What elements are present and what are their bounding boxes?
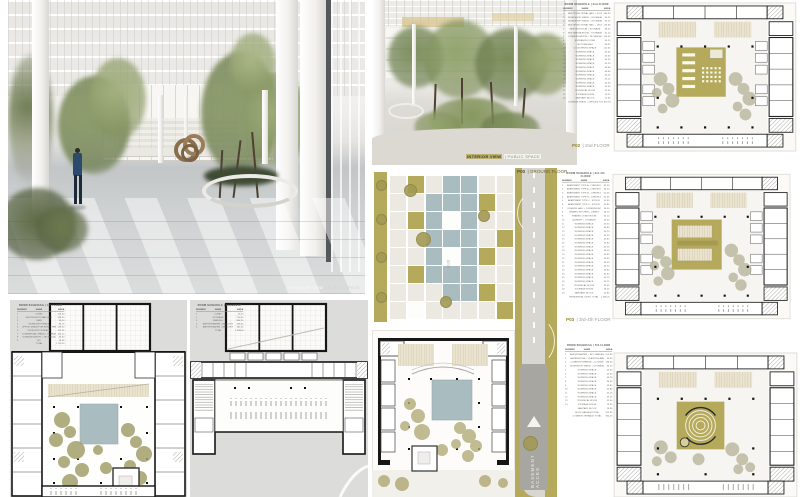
plaza-cell bbox=[479, 176, 495, 193]
floor-code: P03 bbox=[566, 317, 574, 322]
plaza-cell bbox=[461, 284, 477, 301]
plaza-cell bbox=[426, 194, 442, 211]
plaza-cell bbox=[443, 266, 459, 283]
column bbox=[514, 26, 518, 106]
floor-plan-3rd-4th bbox=[612, 170, 791, 323]
plaza-cell bbox=[426, 284, 442, 301]
plaza-cell bbox=[390, 284, 406, 301]
plaza-cell bbox=[461, 302, 477, 319]
schedule-header: NUMBER NAME AREA bbox=[565, 348, 612, 352]
plaza-cell bbox=[426, 302, 442, 319]
floor-name: | GROUND FLOOR bbox=[527, 169, 567, 174]
legend-title: ROOM SCHEDULE | BASEMENT bbox=[196, 304, 243, 307]
plaza-cell bbox=[497, 212, 513, 229]
plaza-cell bbox=[479, 194, 495, 211]
plaza-cell bbox=[426, 212, 442, 229]
schedule-rows: 1AMPHITHEATER + SKY GARDEN210.402GREENHO… bbox=[565, 352, 612, 417]
plaza-cell bbox=[461, 176, 477, 193]
legend-rows: 1LOBBY124.602MULTIFUNCTIONAL HALL286.403… bbox=[17, 312, 64, 345]
tree-marker bbox=[440, 296, 452, 308]
plaza-cell bbox=[497, 176, 513, 193]
header-name: NAME bbox=[22, 308, 56, 311]
tree-canopy bbox=[90, 58, 146, 140]
plaza-cell bbox=[443, 212, 459, 229]
tree-canopy bbox=[230, 33, 276, 95]
plaza-cell bbox=[479, 248, 495, 265]
road-curve-line bbox=[519, 318, 555, 364]
header-area: AREA bbox=[235, 308, 243, 311]
person bbox=[70, 148, 86, 216]
panel-first-floor: ROOM SCHEDULE | 1st FLOOR NUMBER NAME AR… bbox=[10, 300, 187, 497]
tree-marker bbox=[376, 292, 387, 303]
header-name: NAME bbox=[568, 7, 602, 10]
plaza-cell bbox=[390, 194, 406, 211]
plaza-cell bbox=[408, 266, 424, 283]
plaza-cell bbox=[408, 302, 424, 319]
tree-marker bbox=[376, 180, 387, 191]
caption-subtitle: | PUBLIC SPACE bbox=[504, 154, 541, 159]
legend-rows: 1LOBBY45.202STORAGE210.403PARKING864.254… bbox=[196, 312, 243, 332]
plaza-cell bbox=[390, 212, 406, 229]
legend-header: NUMBER NAME AREA bbox=[196, 308, 243, 312]
interior-rendering-main: INTERIOR VIEW | PUBLIC SPACE bbox=[8, 0, 365, 294]
knot-sculpture bbox=[174, 134, 204, 160]
stone-path bbox=[372, 128, 577, 165]
plaza-cell bbox=[461, 212, 477, 229]
plaza-cell bbox=[479, 302, 495, 319]
floor-label-3rd-4th: P03 | 3rd-4th FLOOR bbox=[566, 317, 611, 322]
schedule-header: NUMBER NAME AREA bbox=[563, 7, 610, 11]
level-annotation: +0.00 bbox=[446, 260, 450, 269]
basement-ramp: BASEMENT ACCES bbox=[520, 364, 548, 490]
plaza-cell bbox=[408, 248, 424, 265]
column bbox=[158, 95, 163, 163]
caption-title: INTERIOR VIEW bbox=[289, 285, 323, 290]
plaza-cell bbox=[426, 248, 442, 265]
schedule-title: ROOM SCHEDULE | 3rd-4th FLOOR bbox=[562, 172, 609, 178]
legend-header: NUMBER NAME AREA bbox=[17, 308, 64, 312]
header-area: AREA bbox=[601, 179, 609, 182]
tree-marker bbox=[376, 214, 387, 225]
floor-plan-5th bbox=[613, 352, 798, 497]
floor-name: | 3rd-4th FLOOR bbox=[576, 317, 610, 322]
photo-caption: INTERIOR VIEW | PUBLIC SPACE bbox=[289, 285, 360, 290]
schedule-rows: 1APARTMENT TYPE A - 2 BEDROOM84.202APART… bbox=[562, 183, 609, 299]
plaza-cell bbox=[461, 194, 477, 211]
floor-label-ground: P00 | GROUND FLOOR bbox=[517, 169, 567, 174]
room-schedule-5th-floor: ROOM SCHEDULE | 5th FLOOR NUMBER NAME AR… bbox=[565, 344, 612, 418]
schedule-title: ROOM SCHEDULE | 2nd FLOOR bbox=[563, 3, 610, 6]
header-name: NAME bbox=[570, 348, 604, 351]
plaza-cell bbox=[479, 266, 495, 283]
plaza-cell bbox=[443, 230, 459, 247]
floor-code: P00 bbox=[517, 169, 525, 174]
plaza-cell bbox=[426, 176, 442, 193]
schedule-header: NUMBER NAME AREA bbox=[562, 179, 609, 183]
plaza-cell bbox=[408, 212, 424, 229]
up-arrow-icon bbox=[527, 416, 541, 427]
tree-marker bbox=[416, 232, 431, 247]
plaza-cell bbox=[497, 194, 513, 211]
site-plan-plaza-grid bbox=[390, 176, 513, 319]
plaza-cell bbox=[461, 266, 477, 283]
plaza-cell bbox=[408, 284, 424, 301]
tree-marker bbox=[404, 184, 417, 197]
caption-title: INTERIOR VIEW bbox=[466, 154, 502, 159]
header-name: NAME bbox=[201, 308, 235, 311]
plaza-cell bbox=[426, 266, 442, 283]
plaza-cell bbox=[390, 230, 406, 247]
photo-caption: INTERIOR VIEW | PUBLIC SPACE bbox=[466, 154, 541, 159]
caption-subtitle: | PUBLIC SPACE bbox=[325, 285, 360, 290]
header-name: NAME bbox=[567, 179, 601, 182]
room-schedule-3rd-4th-floor: ROOM SCHEDULE | 3rd-4th FLOOR NUMBER NAM… bbox=[562, 172, 609, 299]
plaza-cell bbox=[479, 284, 495, 301]
plaza-cell bbox=[497, 248, 513, 265]
plaza-cell bbox=[390, 248, 406, 265]
panel-basement: ROOM SCHEDULE | BASEMENT NUMBER NAME ARE… bbox=[190, 300, 368, 497]
legend-basement: ROOM SCHEDULE | BASEMENT NUMBER NAME ARE… bbox=[196, 304, 243, 332]
column bbox=[412, 24, 416, 106]
presentation-sheet: INTERIOR VIEW | PUBLIC SPACE INTERIOR VI… bbox=[0, 0, 800, 497]
legend-first-floor: ROOM SCHEDULE | 1st FLOOR NUMBER NAME AR… bbox=[17, 304, 64, 345]
floor-name: | 2nd FLOOR bbox=[582, 143, 609, 148]
planter-ring bbox=[202, 174, 298, 208]
planter-ring bbox=[388, 103, 424, 119]
plaza-cell bbox=[497, 284, 513, 301]
plaza-cell bbox=[390, 266, 406, 283]
plaza-cell bbox=[497, 302, 513, 319]
plaza-cell bbox=[479, 230, 495, 247]
wood-slats bbox=[492, 13, 534, 21]
column bbox=[262, 90, 268, 164]
schedule-title: ROOM SCHEDULE | 5th FLOOR bbox=[565, 344, 612, 347]
column bbox=[372, 0, 385, 152]
plaza-cell bbox=[443, 176, 459, 193]
tree-marker bbox=[376, 252, 387, 263]
header-area: AREA bbox=[604, 348, 612, 351]
room-schedule-2nd-floor: ROOM SCHEDULE | 2nd FLOOR NUMBER NAME AR… bbox=[563, 3, 610, 104]
roadside-landscape-strip: BASEMENT ACCES bbox=[515, 168, 557, 497]
road-curve-line bbox=[517, 192, 553, 234]
floor-plan-ground-building bbox=[372, 330, 515, 497]
tree-marker bbox=[478, 210, 490, 222]
plaza-cell bbox=[443, 194, 459, 211]
schedule-rows: 1MULTIFUNCTIONAL HALL + FOYER286.402WORK… bbox=[563, 11, 610, 103]
floor-code: P02 bbox=[572, 143, 580, 148]
plaza-cell bbox=[497, 230, 513, 247]
plaza-cell bbox=[461, 230, 477, 247]
tree-marker bbox=[523, 436, 538, 451]
header-area: AREA bbox=[602, 7, 610, 10]
plaza-cell bbox=[497, 266, 513, 283]
floor-label-2nd: P02 | 2nd FLOOR bbox=[572, 143, 610, 148]
plaza-cell bbox=[390, 302, 406, 319]
interior-rendering-atrium: INTERIOR VIEW | PUBLIC SPACE bbox=[372, 0, 577, 165]
floor-plan-2nd bbox=[612, 2, 798, 152]
legend-title: ROOM SCHEDULE | 1st FLOOR bbox=[17, 304, 64, 307]
header-area: AREA bbox=[56, 308, 64, 311]
plaza-cell bbox=[461, 248, 477, 265]
